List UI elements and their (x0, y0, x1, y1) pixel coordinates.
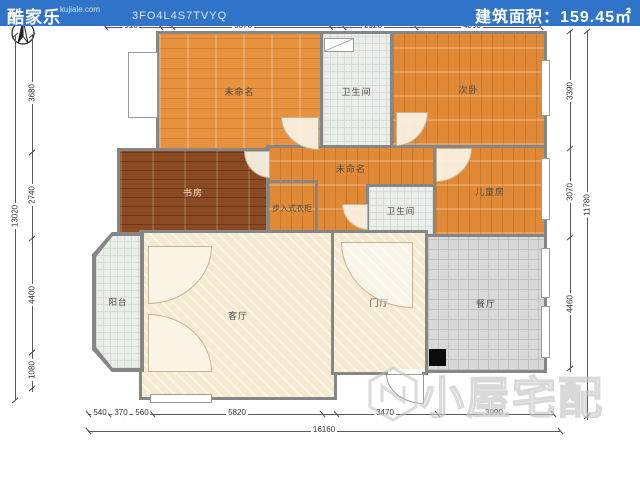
window-unnamed-left (128, 52, 158, 118)
area-text: 建筑面积：159.45㎡ (475, 3, 632, 27)
window-dining-right-1 (541, 248, 550, 298)
dim-label: 1080 (28, 359, 37, 381)
room-balcony-wall: 阳台 (92, 232, 144, 372)
dim-label: 560 (133, 408, 150, 417)
dim-label: 5820 (226, 408, 248, 417)
room-closet: 步入式衣柜 (266, 180, 318, 237)
room-label: 客厅 (228, 309, 248, 322)
room-label: 儿童房 (475, 185, 505, 198)
dim-label: 4460 (566, 293, 575, 315)
footer-bar: 酷家乐 kujiale.com 3FO4L4S7TVYQ 建筑面积：159.45… (0, 0, 640, 26)
dim-label: 3070 (566, 181, 575, 203)
dim-label: 13020 (11, 203, 20, 229)
column-block (429, 349, 446, 366)
window-dining-right-2 (541, 306, 550, 358)
area-value: 159.45㎡ (560, 9, 632, 26)
dim-label: 370 (112, 408, 129, 417)
dim-label: 3390 (566, 80, 575, 102)
window-kids-right (541, 158, 550, 220)
window-living-bottom (150, 394, 212, 403)
room-label: 卫生间 (341, 85, 371, 98)
room-label: 书房 (183, 186, 203, 199)
bath-fixture (324, 38, 354, 52)
room-label: 阳台 (108, 296, 127, 308)
dim-tick (12, 398, 19, 404)
room-label: 餐厅 (476, 297, 496, 310)
dim-line-right-total (587, 31, 588, 420)
door-arc-entry (386, 374, 424, 404)
dim-label: 4400 (28, 284, 37, 306)
plan-code: 3FO4L4S7TVYQ (132, 10, 227, 22)
room-label: 步入式衣柜 (272, 203, 312, 214)
room-label: 卫生间 (387, 205, 416, 217)
brand-logo: 酷家乐 (7, 3, 61, 28)
dim-label: 3990 (483, 408, 505, 417)
dim-label: 3470 (374, 408, 396, 417)
room-label: 次卧 (458, 83, 478, 96)
area-label: 建筑面积： (475, 9, 560, 26)
room-balcony: 阳台 (96, 236, 140, 368)
dim-label: 2740 (28, 184, 37, 206)
dim-label: 540 (91, 408, 108, 417)
room-label: 未命名 (224, 85, 254, 98)
window-bedroom2-right (541, 60, 550, 116)
dim-label: 16160 (311, 425, 337, 434)
brand-site: kujiale.com (60, 5, 100, 14)
dim-label: 11780 (583, 192, 592, 218)
dim-label: 3680 (28, 82, 37, 104)
room-label: 未命名 (336, 162, 366, 175)
